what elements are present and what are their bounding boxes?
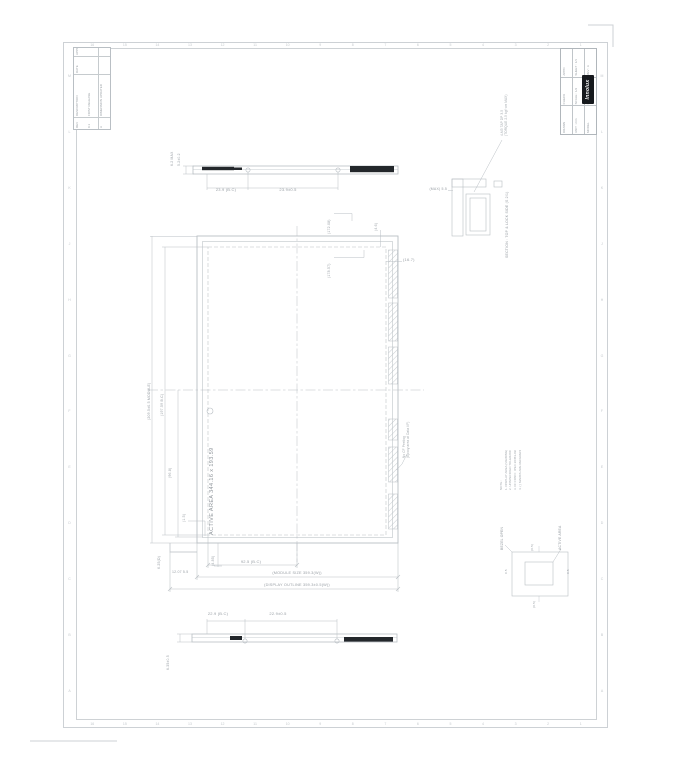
zone-label: E: [63, 439, 76, 495]
zone-labels-top: 16151413121110987654321: [76, 42, 597, 48]
zone-label: L: [597, 104, 607, 160]
zone-label: 4: [467, 720, 500, 728]
zone-label: 11: [239, 42, 272, 48]
dim-half-height: (96.8): [168, 450, 172, 478]
revision-table-header: REV DESCRIPTION DATE APPD: [74, 48, 86, 129]
zone-labels-right: MLKJHGFEDCBA: [597, 48, 607, 719]
callout-top-1: (172.08): [327, 204, 331, 234]
zone-label: 14: [141, 720, 174, 728]
zone-label: D: [63, 495, 76, 551]
bottom-dim-right: 22.9±0.5: [256, 612, 300, 617]
zone-label: 5: [434, 42, 467, 48]
zone-label: 16: [76, 720, 109, 728]
dim-side: 6.25(D): [157, 547, 161, 569]
zone-label: K: [63, 160, 76, 216]
dim-tail: (4.85): [211, 544, 215, 566]
zone-label: F: [597, 384, 607, 440]
zone-label: 15: [109, 42, 142, 48]
rev-col-header: REV: [74, 117, 86, 129]
tolerance-right-label: ACTIVE AREA: [559, 521, 563, 550]
unit-label: UNIT : mm: [573, 105, 584, 134]
dim-corner: (1.5): [182, 502, 186, 522]
top-dim-left: 23.9 (B.C): [206, 188, 246, 193]
detail-gap-label: (MAX) 5.5: [416, 187, 447, 191]
zone-label: 14: [141, 42, 174, 48]
zone-label: 8: [337, 720, 370, 728]
corner-gap-dim: (4.6): [374, 207, 378, 231]
top-dim-right: 23.9±0.5: [266, 188, 310, 193]
zone-label: 10: [271, 720, 304, 728]
appd-col-header: APPD: [74, 48, 86, 56]
zone-label: J: [597, 216, 607, 272]
rev-label: REV : A: [585, 49, 596, 77]
zone-label: 1: [564, 720, 597, 728]
zone-label: C: [597, 551, 607, 607]
approved-label: APPD: [561, 49, 572, 77]
callout-top-2: (178.57): [327, 248, 331, 278]
zone-label: H: [63, 272, 76, 328]
zone-label: E: [597, 439, 607, 495]
dim-module-width: (MODULE SIZE 359.3(W)): [250, 571, 344, 575]
zone-label: 12: [206, 720, 239, 728]
notes-block: NOTE : 1. DISPLAY AREA (VIEWING) TOL ±0.…: [499, 450, 531, 490]
zone-label: 10: [271, 42, 304, 48]
drawing-sheet: 16151413121110987654321 1615141312111098…: [0, 0, 673, 772]
zone-label: 12: [206, 42, 239, 48]
zone-label: G: [597, 328, 607, 384]
zone-label: 6: [402, 42, 435, 48]
zone-label: C: [63, 551, 76, 607]
zone-label: 13: [174, 720, 207, 728]
revision-row: A DIMENSION UPDATED: [98, 48, 111, 129]
dim-open-height: (197.59 B.C): [160, 358, 164, 416]
zone-label: G: [63, 328, 76, 384]
tolerance-top-value: (0.5): [531, 539, 534, 551]
section-note: SECTION : TOP & LOCK SIDE (S 2/1): [505, 188, 509, 258]
zone-label: F: [63, 384, 76, 440]
zone-label: J: [63, 216, 76, 272]
checked-label: CHECK: [561, 77, 572, 106]
zone-label: B: [597, 607, 607, 663]
desc-col-header: DESCRIPTION: [74, 74, 86, 117]
zone-label: 7: [369, 42, 402, 48]
zone-label: 2: [532, 720, 565, 728]
zone-label: 3: [499, 42, 532, 48]
pad-note: No CF Peeling(Epoxy area at Data I/F): [402, 412, 416, 458]
top-thickness-2: 5.2±0.2: [178, 134, 182, 166]
zone-label: 8: [337, 42, 370, 48]
zone-label: B: [63, 607, 76, 663]
zone-labels-bottom: 16151413121110987654321: [76, 720, 597, 728]
zone-label: 13: [174, 42, 207, 48]
dim-outline-width: (DISPLAY OUTLINE 359.3±0.5(W)): [243, 583, 351, 587]
active-area-label: ACTIVE AREA 344.16 x 193.59: [209, 421, 219, 535]
note-item: 4. ( ) MARKS ARE REFERENCE DIM.: [518, 450, 523, 490]
zone-label: A: [63, 663, 76, 719]
zone-label: 5: [434, 720, 467, 728]
zone-labels-left: MLKJHGFEDCBA: [63, 48, 76, 719]
model-label: MODEL: [585, 105, 596, 134]
dim-small-width: 12.07 5.5: [172, 570, 202, 574]
sheet-label: SHEET : 1/1: [573, 49, 584, 77]
pad-width-dim: (16.7): [403, 258, 425, 263]
zone-label: 4: [467, 42, 500, 48]
bottom-thickness: 6.35±0.5: [167, 644, 171, 670]
note-item: 3. I/F CONN : IPEX 20453-030T: [513, 450, 518, 490]
zone-label: M: [597, 48, 607, 104]
dim-module-height: (209.5±0.5 MODULE): [147, 358, 151, 420]
dim-half-width: 92.5 (B.C): [228, 560, 274, 565]
revision-table: REV DESCRIPTION DATE APPD 0.1 FIRST RELE…: [73, 47, 111, 130]
zone-label: 3: [499, 720, 532, 728]
zone-label: 11: [239, 720, 272, 728]
zone-label: 7: [369, 720, 402, 728]
drawn-label: DRAWN: [561, 105, 572, 134]
tolerance-bottom-value: (0.5): [533, 596, 536, 608]
zone-label: H: [597, 272, 607, 328]
revision-row: 0.1 FIRST RELEASE: [86, 48, 98, 129]
zone-label: K: [597, 160, 607, 216]
screw-note: 4-M3 TAP DP 3.5(TORQUE 2.5 kgf·cm MAX): [500, 86, 512, 136]
zone-label: D: [597, 495, 607, 551]
zone-label: 6: [402, 720, 435, 728]
tolerance-left-value: 0.5: [505, 562, 508, 574]
title-block: DRAWN CHECK APPD UNIT : mm SCALE : 1/2 S…: [560, 48, 597, 135]
zone-label: 9: [304, 720, 337, 728]
zone-label: 9: [304, 42, 337, 48]
bottom-dim-left: 22.9 (B.C): [198, 612, 238, 617]
maker-logo: Innolux: [582, 75, 594, 104]
date-col-header: DATE: [74, 56, 86, 74]
top-thickness-1: 6.2 MAX: [171, 134, 175, 166]
zone-label: A: [597, 663, 607, 719]
tolerance-right-value: 0.5: [567, 562, 570, 574]
tolerance-left-label: BEZEL OPEN: [501, 521, 505, 550]
zone-label: 15: [109, 720, 142, 728]
